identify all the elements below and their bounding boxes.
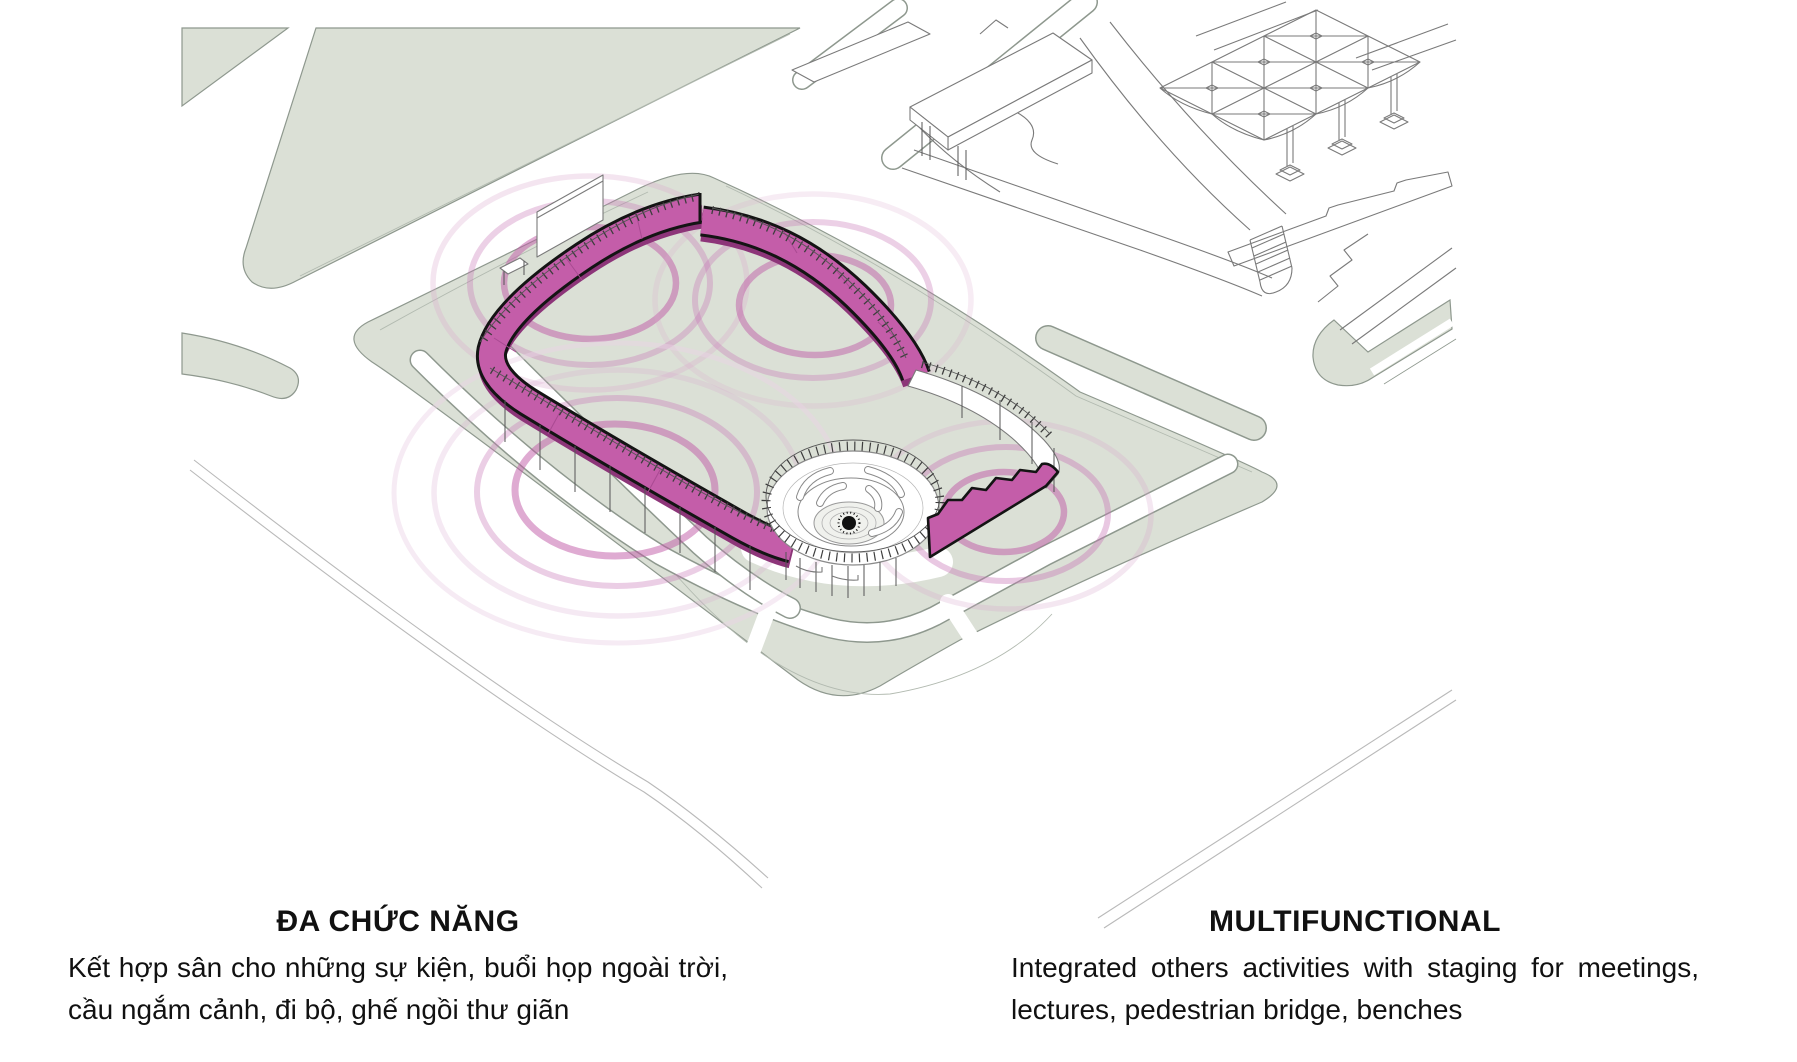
page: { "page": { "background": "#ffffff" }, "… bbox=[0, 0, 1797, 1062]
caption-vietnamese: ĐA CHỨC NĂNG Kết hợp sân cho những sự ki… bbox=[68, 905, 728, 1031]
caption-vi-title: ĐA CHỨC NĂNG bbox=[68, 905, 728, 939]
caption-english: MULTIFUNCTIONAL Integrated others activi… bbox=[1011, 905, 1699, 1031]
roof-outlines bbox=[1196, 2, 1456, 344]
canopy-structure bbox=[1160, 10, 1420, 181]
figure-stage bbox=[0, 0, 1797, 1062]
site-plan-illustration bbox=[0, 0, 1797, 1062]
caption-vi-body: Kết hợp sân cho những sự kiện, buổi họp … bbox=[68, 947, 728, 1031]
caption-en-title: MULTIFUNCTIONAL bbox=[1011, 905, 1699, 939]
caption-en-body: Integrated others activities with stagin… bbox=[1011, 947, 1699, 1031]
